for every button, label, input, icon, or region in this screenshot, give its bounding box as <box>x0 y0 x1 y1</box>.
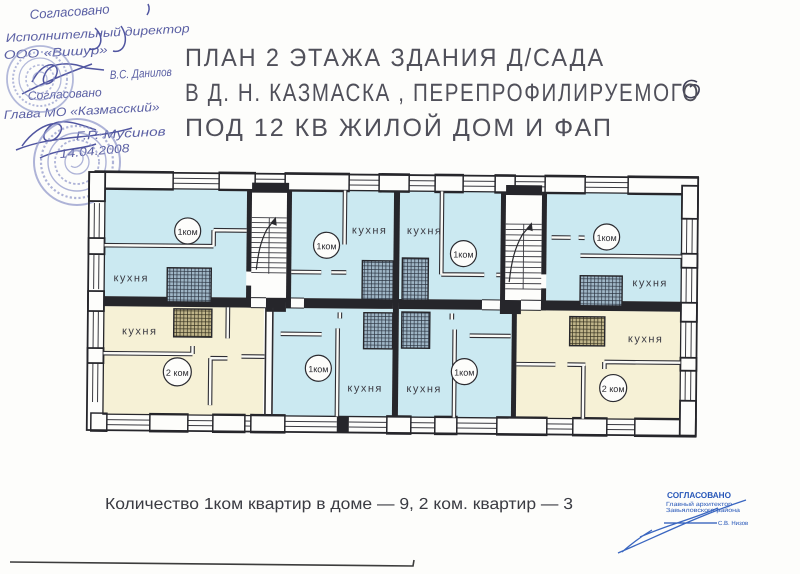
svg-text:1ком: 1ком <box>177 227 197 237</box>
svg-text:кухня: кухня <box>632 277 668 289</box>
svg-text:Исполнительный директор: Исполнительный директор <box>5 21 190 45</box>
svg-text:ПОД 12 КВ ЖИЛОЙ ДОМ И ФАП: ПОД 12 КВ ЖИЛОЙ ДОМ И ФАП <box>185 113 613 142</box>
svg-text:2 ком: 2 ком <box>602 384 625 394</box>
svg-text:кухня: кухня <box>406 383 442 395</box>
svg-text:1ком: 1ком <box>308 364 328 374</box>
svg-text:Завьяловского района: Завьяловского района <box>666 507 741 514</box>
svg-text:Количество 1ком квартир в доме: Количество 1ком квартир в доме — 9, 2 ко… <box>105 496 573 513</box>
svg-text:2 ком: 2 ком <box>166 368 189 378</box>
svg-text:1ком: 1ком <box>596 233 616 243</box>
svg-text:кухня: кухня <box>347 382 383 394</box>
svg-text:кухня: кухня <box>407 225 443 237</box>
svg-text:СОГЛАСОВАНО: СОГЛАСОВАНО <box>667 490 731 500</box>
svg-text:ПЛАН 2 ЭТАЖА ЗДАНИЯ Д/САДА: ПЛАН 2 ЭТАЖА ЗДАНИЯ Д/САДА <box>185 44 605 72</box>
svg-text:1ком: 1ком <box>454 368 474 378</box>
svg-text:кухня: кухня <box>628 333 664 345</box>
svg-text:1ком: 1ком <box>453 250 473 260</box>
svg-text:Главный архитектор: Главный архитектор <box>666 501 733 508</box>
svg-text:кухня: кухня <box>352 225 388 237</box>
svg-text:1ком: 1ком <box>316 241 336 251</box>
svg-text:кухня: кухня <box>122 325 158 337</box>
svg-text:кухня: кухня <box>113 272 149 284</box>
svg-text:Согласовано: Согласовано <box>29 1 110 22</box>
svg-text:В.С. Данилов: В.С. Данилов <box>109 65 172 82</box>
svg-text:С.В. Низов: С.В. Низов <box>718 520 748 527</box>
svg-text:В Д. Н. КАЗМАСКА , ПЕРЕПРОФИЛИ: В Д. Н. КАЗМАСКА , ПЕРЕПРОФИЛИРУЕМОГО <box>185 79 700 107</box>
